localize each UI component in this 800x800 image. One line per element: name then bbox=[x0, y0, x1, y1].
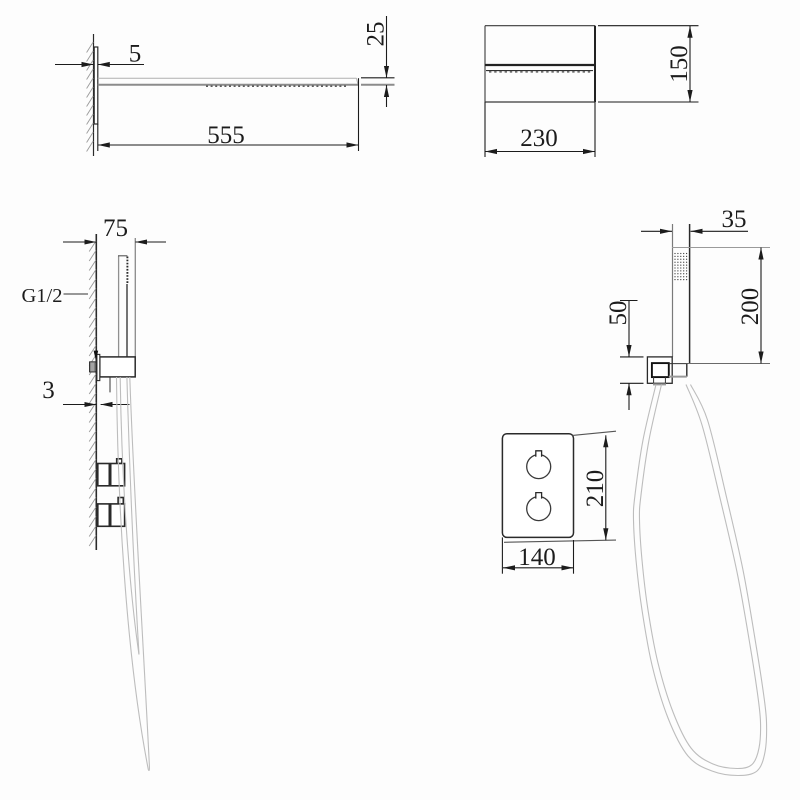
svg-text:25: 25 bbox=[363, 22, 390, 47]
svg-text:200: 200 bbox=[737, 288, 764, 326]
svg-text:210: 210 bbox=[582, 470, 609, 508]
svg-text:50: 50 bbox=[605, 301, 632, 326]
svg-text:3: 3 bbox=[42, 377, 55, 404]
svg-text:5: 5 bbox=[129, 41, 142, 68]
svg-text:150: 150 bbox=[666, 45, 693, 83]
svg-text:555: 555 bbox=[207, 122, 245, 149]
svg-text:75: 75 bbox=[103, 215, 128, 242]
svg-text:35: 35 bbox=[722, 206, 747, 233]
svg-text:140: 140 bbox=[518, 544, 556, 571]
svg-text:G1/2: G1/2 bbox=[22, 285, 63, 307]
svg-text:230: 230 bbox=[520, 125, 558, 152]
